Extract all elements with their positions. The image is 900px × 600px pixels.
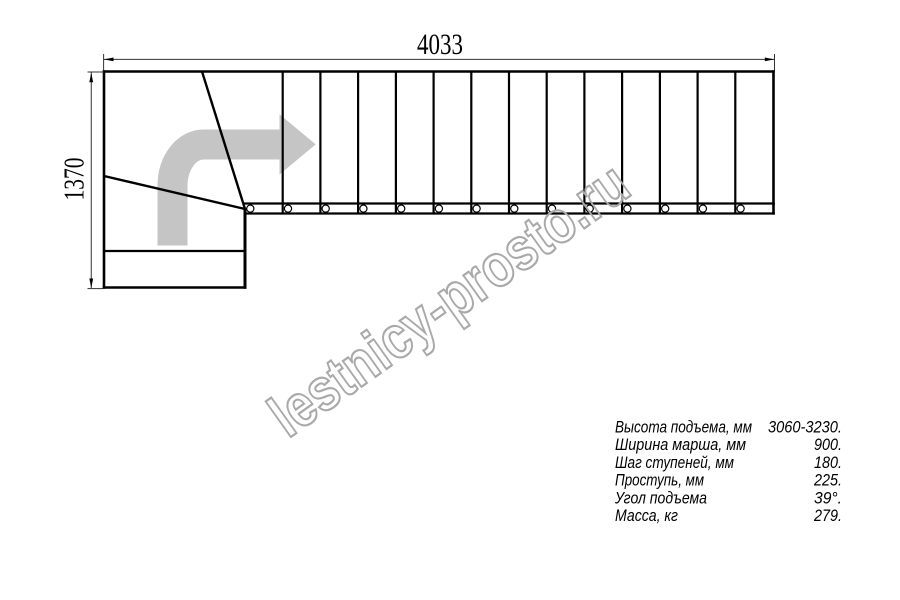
- svg-text:lestnicy-prosto.ru: lestnicy-prosto.ru: [257, 149, 641, 449]
- svg-text:900.: 900.: [814, 435, 842, 454]
- svg-text:Угол подъема: Угол подъема: [614, 488, 707, 507]
- svg-text:3060-3230.: 3060-3230.: [768, 418, 842, 437]
- svg-text:4033: 4033: [417, 28, 463, 61]
- svg-text:Шаг ступеней, мм: Шаг ступеней, мм: [615, 453, 734, 472]
- svg-text:Высота подъема, мм: Высота подъема, мм: [615, 418, 752, 437]
- svg-text:279.: 279.: [813, 506, 842, 525]
- svg-text:39°.: 39°.: [814, 488, 842, 507]
- svg-text:225.: 225.: [813, 471, 842, 490]
- svg-text:Масса, кг: Масса, кг: [615, 506, 678, 525]
- svg-text:Проступь, мм: Проступь, мм: [615, 471, 704, 490]
- svg-text:Ширина марша, мм: Ширина марша, мм: [615, 435, 746, 454]
- svg-text:180.: 180.: [814, 453, 842, 472]
- svg-text:1370: 1370: [60, 158, 91, 201]
